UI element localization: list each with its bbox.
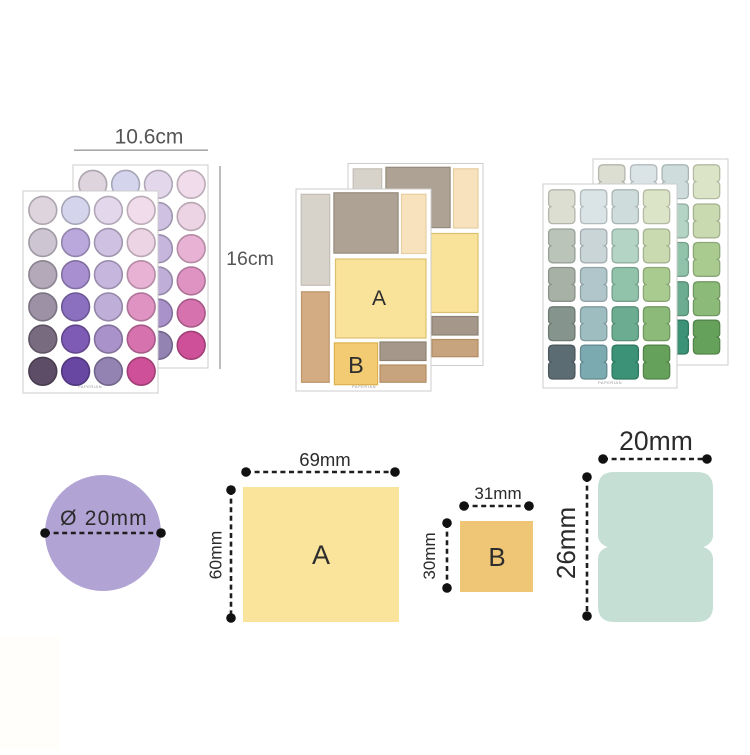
- svg-text:30mm: 30mm: [420, 532, 439, 579]
- svg-text:60mm: 60mm: [206, 531, 226, 580]
- svg-text:31mm: 31mm: [474, 484, 521, 503]
- svg-text:A: A: [372, 287, 386, 310]
- svg-text:PAPERIAN: PAPERIAN: [78, 384, 102, 389]
- svg-text:26mm: 26mm: [551, 507, 581, 579]
- svg-text:20mm: 20mm: [619, 426, 693, 456]
- svg-text:A: A: [312, 540, 330, 570]
- svg-text:Ø 20mm: Ø 20mm: [60, 507, 148, 530]
- svg-text:B: B: [348, 352, 364, 378]
- svg-text:PAPERIAN: PAPERIAN: [598, 380, 622, 385]
- svg-text:69mm: 69mm: [299, 449, 350, 470]
- svg-text:16cm: 16cm: [226, 248, 274, 270]
- svg-text:10.6cm: 10.6cm: [115, 126, 184, 149]
- svg-text:PAPERIAN: PAPERIAN: [352, 384, 376, 389]
- svg-text:B: B: [488, 542, 505, 572]
